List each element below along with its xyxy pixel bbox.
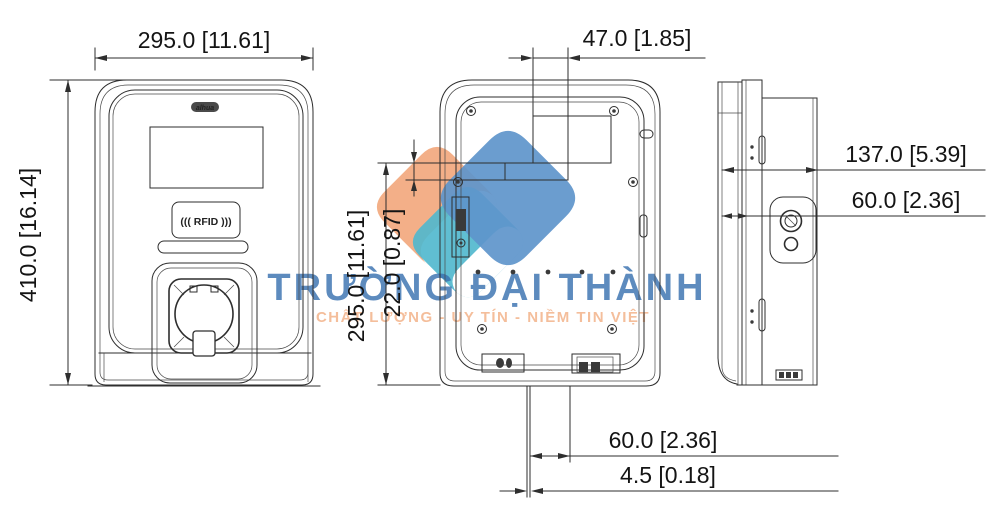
watermark-company-name: TRƯỜNG ĐẠI THÀNH [267,265,706,309]
rear-hole-offset-dim-label: 47.0 [1.85] [583,25,692,51]
side-bottom-connector [776,370,802,380]
dahua-logo-text: alhua [196,105,214,112]
socket-latch [193,331,215,356]
front-width-dim-label: 295.0 [11.61] [138,27,271,53]
rear-side-offset-dim-label: 22.0 [0.87] [379,209,405,318]
display-screen [150,127,263,188]
side-socket-panel [770,197,816,263]
front-height-dimension: 410.0 [16.14] [15,80,137,385]
side-view: 137.0 [5.39] 60.0 [2.36] [718,80,985,385]
rear-height-dim-label: 295.0 [11.61] [343,210,369,343]
rear-base-thickness-dim-label: 4.5 [0.18] [620,462,716,488]
side-bracket [742,80,762,385]
ev-charger-dimension-drawing: TRƯỜNG ĐẠI THÀNH CHẤT LƯỢNG - UY TÍN - N… [0,0,1000,517]
rfid-label: ((( RFID ))) [180,216,231,228]
rear-view: 47.0 [1.85] [343,25,838,497]
rear-right-slot-top [640,130,653,138]
front-view: 295.0 [11.61] 410.0 [16.14] alhua [15,27,320,386]
rear-base-thickness-dimension: 4.5 [0.18] [500,462,838,494]
front-base [88,353,320,386]
indicator-light-bar [158,241,248,253]
side-mount-depth-dimension: 60.0 [2.36] [722,187,985,219]
side-mount-depth-dim-label: 60.0 [2.36] [852,187,961,213]
side-depth-dimension: 137.0 [5.39] [722,141,985,173]
side-back-plate [718,80,742,385]
technical-drawing-page: TRƯỜNG ĐẠI THÀNH CHẤT LƯỢNG - UY TÍN - N… [0,0,1000,517]
front-height-dim-label: 410.0 [16.14] [15,168,41,302]
dahua-logo-icon: alhua [191,102,219,112]
rear-bottom-offset-dim-label: 60.0 [2.36] [609,427,718,453]
charging-socket [152,263,257,383]
side-body [737,98,817,385]
company-watermark: TRƯỜNG ĐẠI THÀNH CHẤT LƯỢNG - UY TÍN - N… [267,122,706,344]
rfid-reader-area: ((( RFID ))) [172,202,240,238]
front-width-dimension: 295.0 [11.61] [95,27,313,70]
side-seam-details [750,136,765,331]
side-depth-dim-label: 137.0 [5.39] [845,141,967,167]
